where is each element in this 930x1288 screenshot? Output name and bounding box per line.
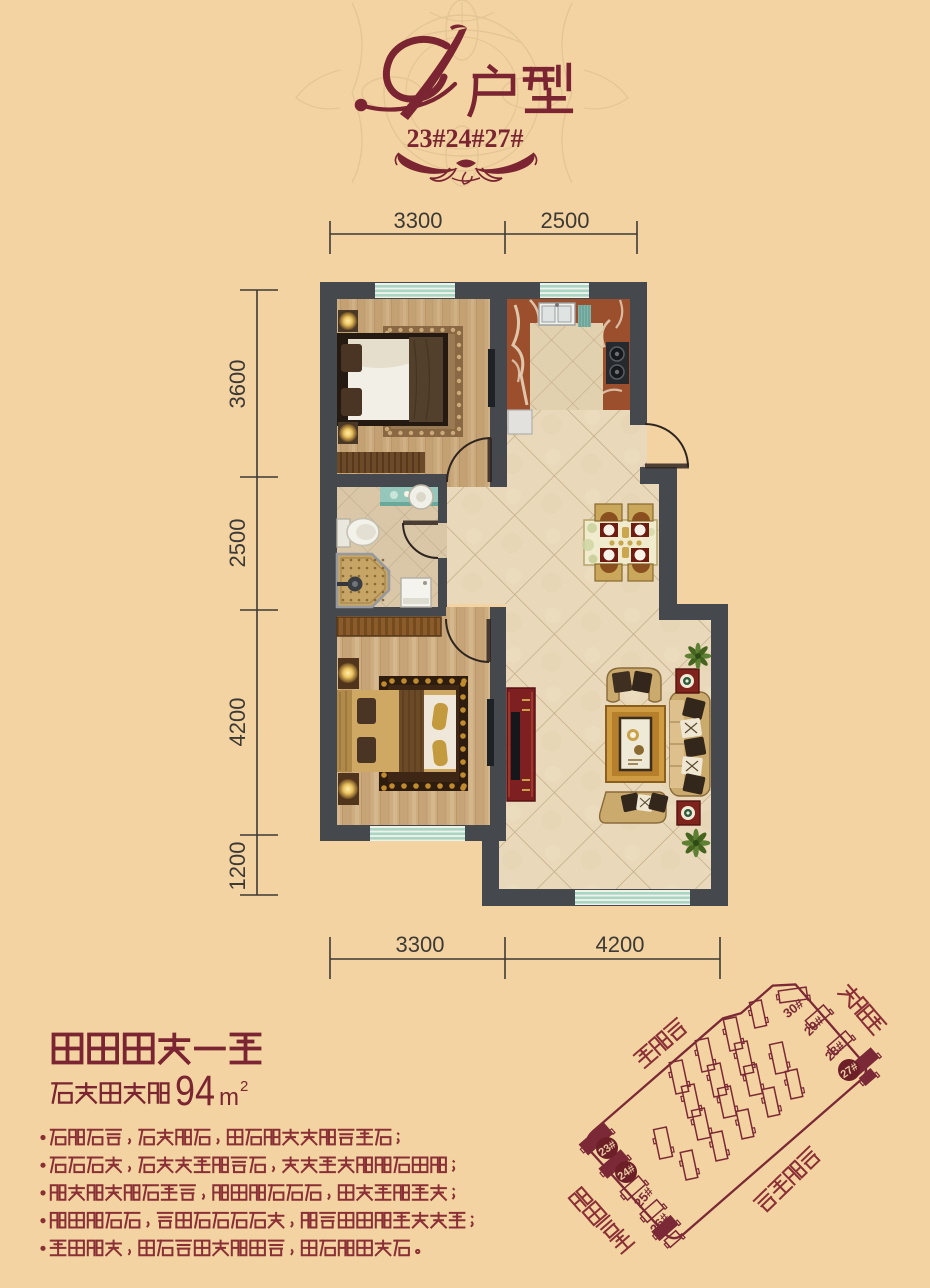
svg-text:4200: 4200 bbox=[596, 932, 645, 957]
svg-text:2: 2 bbox=[240, 1078, 248, 1095]
svg-text:m: m bbox=[219, 1084, 239, 1111]
svg-text:23#24#27#: 23#24#27# bbox=[407, 124, 524, 153]
svg-text:3600: 3600 bbox=[225, 360, 250, 409]
svg-text:2500: 2500 bbox=[541, 208, 590, 233]
svg-text:4200: 4200 bbox=[225, 698, 250, 747]
svg-text:1200: 1200 bbox=[225, 842, 250, 891]
svg-text:3300: 3300 bbox=[396, 932, 445, 957]
svg-text:2500: 2500 bbox=[225, 519, 250, 568]
svg-text:3300: 3300 bbox=[394, 208, 443, 233]
svg-text:94: 94 bbox=[175, 1067, 215, 1115]
